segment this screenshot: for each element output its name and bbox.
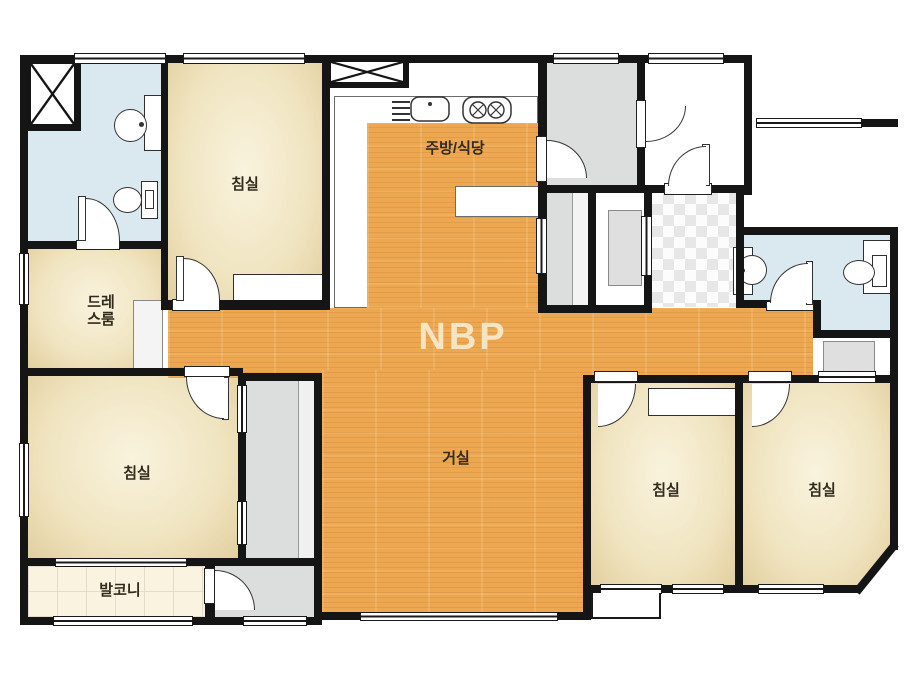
window: [74, 53, 166, 64]
door-arc: [646, 106, 686, 142]
wall: [710, 185, 752, 193]
wall: [813, 330, 898, 338]
window: [55, 558, 187, 567]
door-sill: [76, 240, 120, 250]
room-label-bedroom: 침실: [772, 482, 872, 499]
wall: [637, 55, 645, 104]
room-label-bedroom: 침실: [616, 482, 716, 499]
door-sill: [204, 568, 215, 604]
window: [19, 253, 29, 305]
niche-cabinet: [823, 341, 875, 375]
window: [756, 118, 862, 128]
wall: [736, 227, 898, 235]
closet-left-strip: [572, 193, 589, 305]
sliding-door: [237, 501, 247, 545]
corridor-closet-strip: [298, 381, 315, 563]
bay-window: [591, 593, 661, 619]
wall: [538, 185, 645, 193]
wall: [20, 55, 28, 625]
toilet-bowl-icon: [843, 260, 875, 285]
window: [672, 584, 724, 594]
entry-hall-floor: [652, 193, 736, 307]
wall: [243, 373, 322, 381]
kitchen-island: [455, 186, 539, 217]
window: [183, 53, 305, 64]
window: [553, 53, 619, 64]
sliding-door: [641, 216, 652, 276]
stove-icon: [462, 96, 512, 124]
room-label-balcony: 발코니: [70, 582, 170, 599]
door-leaf: [78, 196, 86, 241]
door-sill: [748, 371, 792, 382]
wall: [583, 375, 591, 593]
toilet-bowl-icon: [113, 187, 142, 213]
duct-x-icon: [331, 62, 403, 82]
sliding-door: [237, 385, 247, 433]
sliding-door: [536, 218, 547, 274]
room-label-living: 거실: [406, 450, 506, 467]
living-room-floor: [322, 370, 583, 618]
sink-icon: [410, 96, 450, 122]
dress-line1: 드레: [87, 294, 115, 311]
room-label-dress: 드레 스룸: [61, 294, 141, 329]
wall: [583, 592, 591, 620]
wall: [735, 383, 743, 585]
window: [243, 616, 307, 626]
wall: [161, 55, 168, 305]
wall: [322, 55, 330, 310]
wall: [890, 375, 898, 550]
duct-x-icon: [31, 64, 74, 124]
door-sill: [594, 371, 638, 382]
door-sill: [536, 136, 547, 182]
door-sill: [636, 100, 646, 148]
wall: [538, 55, 547, 140]
door-leaf: [176, 256, 184, 301]
window: [53, 616, 193, 626]
wall: [314, 373, 322, 625]
door-sill: [184, 366, 230, 377]
room-label-bedroom: 침실: [87, 465, 187, 482]
wall: [736, 185, 744, 308]
window: [19, 443, 29, 517]
faucet-dot: [139, 122, 144, 127]
sliding-door: [818, 371, 876, 383]
window: [360, 612, 558, 621]
room-label-bedroom: 침실: [195, 176, 295, 193]
watermark: NBP: [393, 316, 533, 359]
floor-plan: 침실 드레 스룸 주방/식당 침실 거실 침실 침실 발코니 NBP: [0, 0, 923, 676]
wall: [744, 55, 752, 195]
toilet-flush-button: [145, 190, 154, 209]
window: [648, 53, 724, 64]
door-arc: [668, 146, 706, 186]
wall: [858, 119, 898, 127]
dish-rack-icon: [392, 101, 410, 121]
wall: [588, 193, 596, 313]
wall: [890, 227, 898, 383]
dress-line2: 스룸: [87, 311, 115, 328]
closet-right-cabinet: [608, 210, 642, 286]
room-label-kitchen: 주방/식당: [405, 140, 505, 157]
window: [758, 584, 824, 594]
wardrobe: [648, 388, 736, 416]
